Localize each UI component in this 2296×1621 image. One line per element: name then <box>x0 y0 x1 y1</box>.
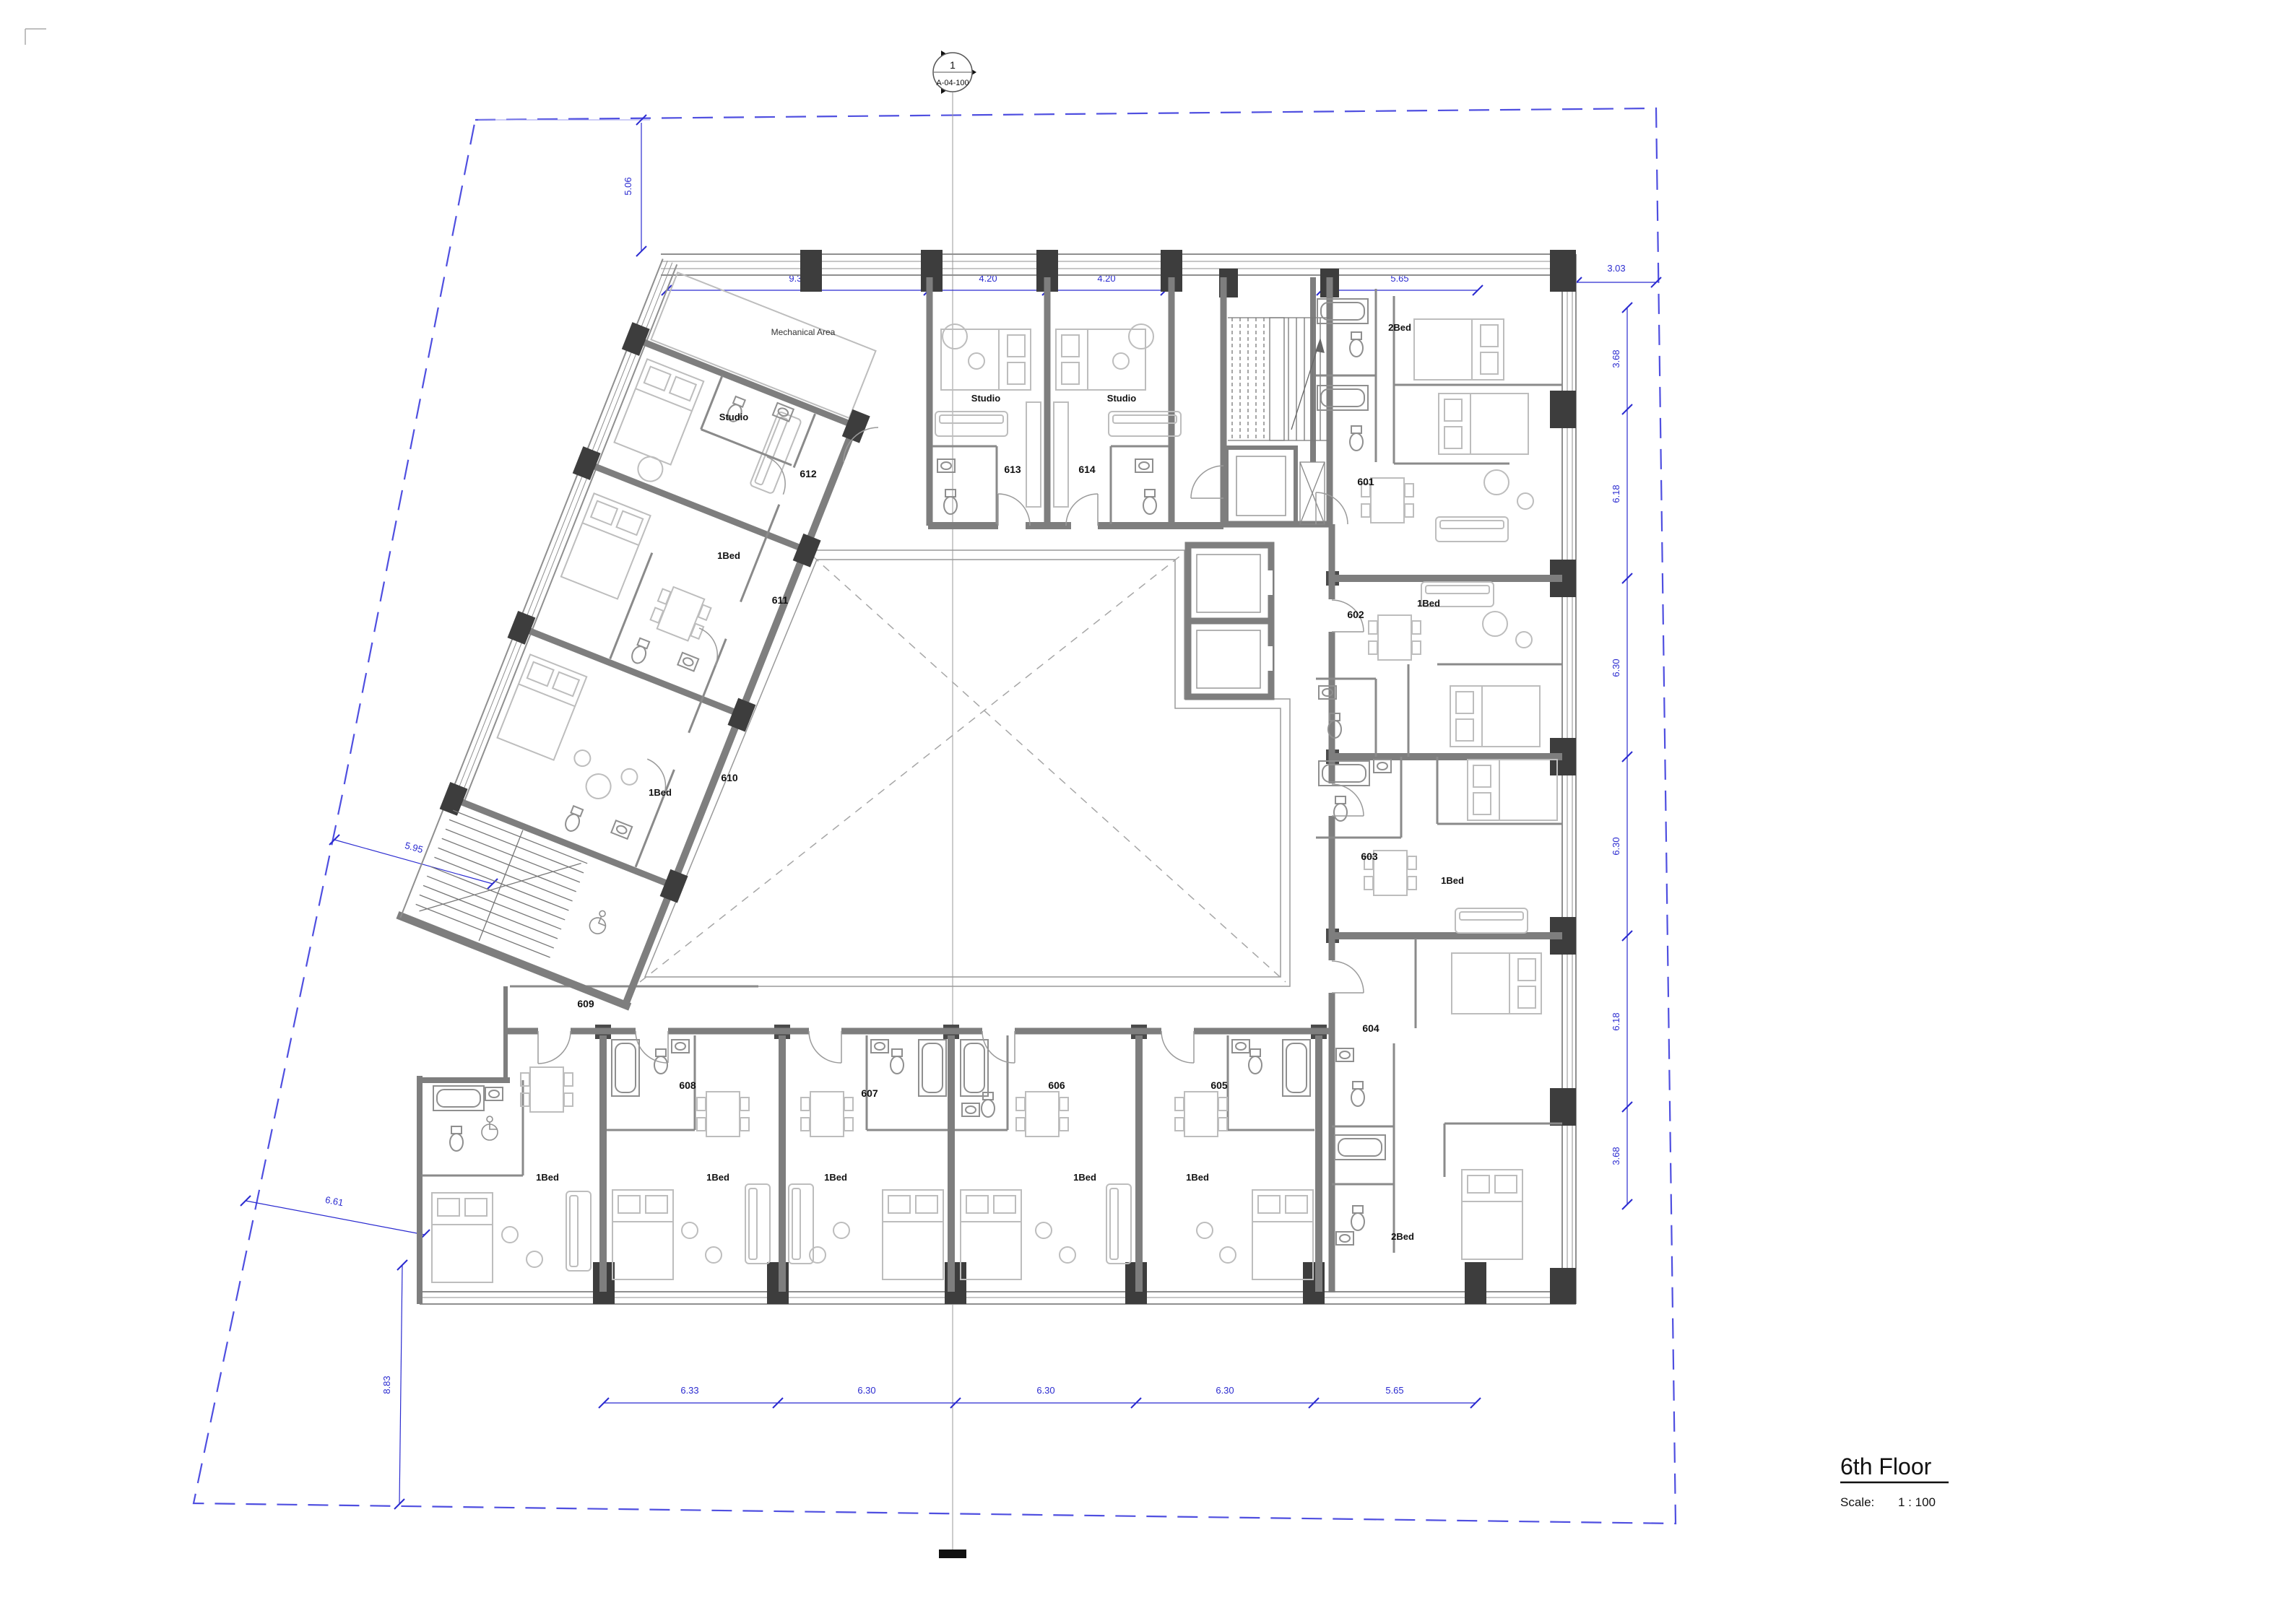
label-num-601: 601 <box>1357 476 1374 487</box>
section-line-end-tick <box>939 1550 966 1558</box>
unit-604-interior <box>1332 939 1562 1259</box>
label-type-612: Studio <box>719 412 748 422</box>
room-labels: Mechanical Area 2Bed 601 602 1Bed 603 1B… <box>536 322 1464 1242</box>
wing-stair-treads <box>412 804 590 968</box>
dim-top-right: 3.03 <box>1607 263 1625 274</box>
sheet-corner-mark <box>25 29 46 45</box>
label-num-609: 609 <box>577 998 594 1009</box>
interior-walls <box>506 277 1562 1292</box>
dim-right-4: 6.30 <box>1611 837 1621 855</box>
studio-613-interior <box>932 324 1041 526</box>
unit-603-interior <box>1316 757 1562 933</box>
label-type-610: 1Bed <box>649 787 672 798</box>
dim-right-3: 6.30 <box>1611 659 1621 677</box>
dim-bottom-4: 6.30 <box>1216 1385 1234 1396</box>
dim-bottom-2: 6.30 <box>857 1385 875 1396</box>
label-type-613: Studio <box>971 393 1000 404</box>
label-type-614: Studio <box>1107 393 1136 404</box>
dim-right-2: 6.18 <box>1611 484 1621 503</box>
dim-bottom-1: 6.33 <box>680 1385 698 1396</box>
angled-wing <box>397 257 896 1010</box>
unit-606-interior <box>955 1031 1131 1279</box>
stair-treads-upper <box>1232 318 1264 440</box>
label-type-605: 1Bed <box>1186 1172 1209 1183</box>
dim-right-5: 6.18 <box>1611 1012 1621 1030</box>
unit-607-interior <box>789 1031 948 1279</box>
label-num-608: 608 <box>679 1079 696 1091</box>
dim-right-6: 3.68 <box>1611 1147 1621 1165</box>
elevator-core <box>1188 545 1273 697</box>
dim-left-lower: 6.61 <box>324 1194 345 1208</box>
sheet-scale-label: Scale: <box>1840 1495 1874 1509</box>
label-num-604: 604 <box>1362 1022 1379 1034</box>
dim-left-top: 5.06 <box>623 177 633 195</box>
elevator-car-2 <box>1197 630 1260 688</box>
label-type-601: 2Bed <box>1388 322 1411 333</box>
stair-center-wall <box>1270 318 1284 440</box>
wheelchair-icon <box>482 1116 498 1140</box>
label-num-606: 606 <box>1048 1079 1065 1091</box>
dim-bottom-5: 5.65 <box>1385 1385 1403 1396</box>
label-mechanical-area: Mechanical Area <box>771 327 836 337</box>
label-num-607: 607 <box>861 1087 878 1099</box>
sheet-scale-value: 1 : 100 <box>1898 1495 1936 1509</box>
section-marker: 1 A-04-100 <box>933 51 976 94</box>
label-type-602: 1Bed <box>1417 598 1440 609</box>
dim-left-mid: 5.95 <box>404 840 424 855</box>
label-type-609: 1Bed <box>536 1172 559 1183</box>
title-block: 6th Floor Scale: 1 : 100 <box>1840 1453 1949 1509</box>
label-num-602: 602 <box>1347 609 1364 620</box>
section-sheet-ref: A-04-100 <box>936 79 969 87</box>
label-type-603: 1Bed <box>1441 875 1464 886</box>
label-type-607: 1Bed <box>824 1172 847 1183</box>
section-number: 1 <box>950 59 956 71</box>
studio-614-interior <box>1054 324 1181 526</box>
dim-bottom-3: 6.30 <box>1036 1385 1054 1396</box>
unit-608-interior <box>607 1031 770 1279</box>
label-type-606: 1Bed <box>1073 1172 1096 1183</box>
label-num-603: 603 <box>1361 851 1378 862</box>
mechanical-area-outline <box>651 272 875 418</box>
label-type-604: 2Bed <box>1391 1231 1414 1242</box>
label-type-611: 1Bed <box>717 550 740 561</box>
label-num-605: 605 <box>1210 1079 1228 1091</box>
dim-left-bottom: 8.83 <box>381 1376 392 1394</box>
elevator-car-1 <box>1197 555 1260 612</box>
wing-wheelchair-icon <box>587 908 611 936</box>
sheet-title: 6th Floor <box>1840 1453 1932 1479</box>
courtyard <box>636 550 1290 986</box>
dim-right-1: 3.68 <box>1611 349 1621 368</box>
label-num-612: 612 <box>800 468 817 479</box>
label-num-611: 611 <box>772 594 789 606</box>
unit-605-interior <box>1161 1031 1314 1279</box>
label-num-610: 610 <box>721 772 738 783</box>
label-num-613: 613 <box>1004 464 1021 475</box>
floor-plan-sheet: 1 A-04-100 9.30 4.20 4.20 5.65 3.03 3.68… <box>0 0 2296 1621</box>
label-num-614: 614 <box>1078 464 1096 475</box>
unit-601-interior <box>1316 289 1562 542</box>
label-type-608: 1Bed <box>706 1172 729 1183</box>
property-boundary <box>194 108 1676 1524</box>
